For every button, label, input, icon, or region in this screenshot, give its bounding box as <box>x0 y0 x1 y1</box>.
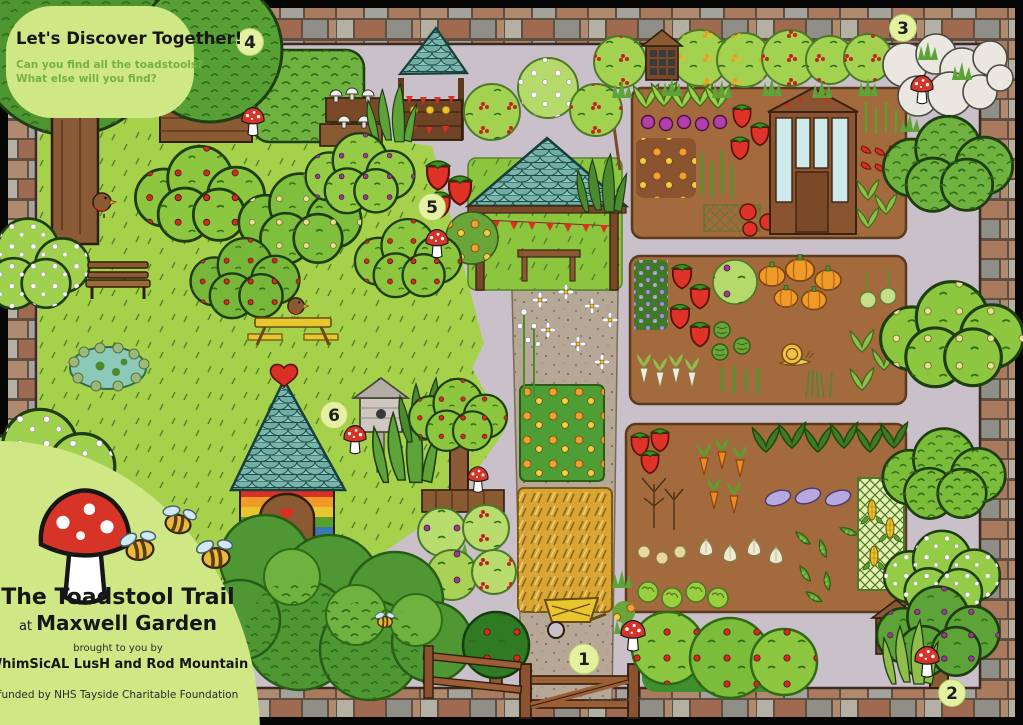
nasturtium-bed <box>520 385 604 481</box>
trail-marker-4-label: 4 <box>244 33 256 53</box>
trail-marker-2-label: 2 <box>946 684 958 704</box>
poster-subtitle: at Maxwell Garden <box>19 611 217 635</box>
poster-byline: brought to you by <box>73 643 163 654</box>
trail-marker-6-label: 6 <box>328 406 340 426</box>
trail-marker-3: 3 <box>890 15 917 42</box>
vegetable-bed-bottom <box>626 423 908 613</box>
trail-marker-5-label: 5 <box>426 198 438 218</box>
trail-marker-2: 2 <box>939 680 966 707</box>
poster-funding: funded by NHS Tayside Charitable Foundat… <box>0 689 238 701</box>
trail-marker-1: 1 <box>569 644 599 674</box>
trail-marker-5: 5 <box>419 194 446 221</box>
greenhouse <box>768 88 858 234</box>
bubble-question-2: What else will you find? <box>16 73 157 85</box>
marigold-clump-path <box>613 601 635 623</box>
trail-marker-3-label: 3 <box>897 19 909 39</box>
bubble-heading: Let's Discover Together! <box>16 29 242 48</box>
trail-marker-1-label: 1 <box>578 650 590 670</box>
garden-map-illustration: 1 2 3 4 5 6 Let's Discover Together! Can… <box>0 0 1023 725</box>
blackcurrant-bush <box>713 260 757 304</box>
vegetable-bed-top <box>632 82 906 238</box>
lavender-row <box>634 260 668 330</box>
wheat-bed <box>518 488 612 612</box>
vegetable-bed-middle <box>630 255 906 404</box>
poster-title: The Toadstool Trail <box>1 585 234 610</box>
sunflower-patch <box>636 138 696 198</box>
bubble-question-1: Can you find all the toadstools? <box>16 59 203 71</box>
trail-marker-6: 6 <box>321 402 348 429</box>
toadstool-trail-poster: 1 2 3 4 5 6 Let's Discover Together! Can… <box>0 0 1023 725</box>
poster-authors: WhimSicAL LusH and Rod Mountain <box>0 657 248 672</box>
